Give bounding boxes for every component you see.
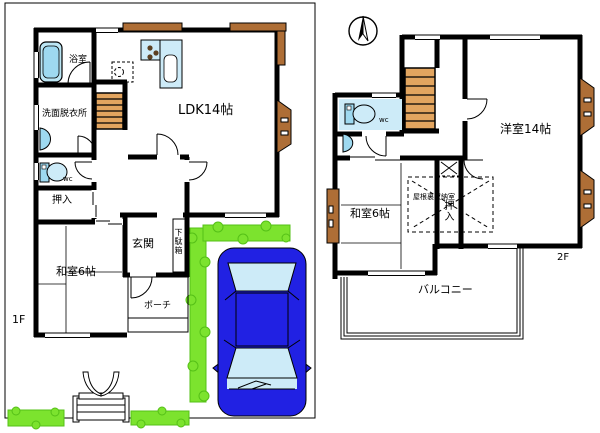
washbasin-1f xyxy=(40,128,51,150)
floor-plan-page: LDK14帖 浴室 洗面脱衣所 wc 押入 和室6帖 玄関 下駄箱 ポーチ 1F… xyxy=(0,0,600,433)
floor1-openings xyxy=(92,160,184,278)
bay-window-washitsu-2f xyxy=(327,189,339,243)
room-label-shoe-cabinet: 下駄箱 xyxy=(174,228,182,255)
room-label-balcony: バルコニー xyxy=(418,284,473,295)
floor1-stairs xyxy=(96,93,123,129)
room-label-wc-2f: wc xyxy=(379,117,389,124)
room-label-wc-1f: wc xyxy=(63,176,73,183)
wc-room-2f xyxy=(339,99,402,152)
washbasin-2f xyxy=(343,134,353,152)
room-label-western-room: 洋室14帖 xyxy=(500,123,551,135)
car-rear-window xyxy=(228,263,296,291)
toilet-bowl-2f xyxy=(353,105,375,123)
ldk-door-a xyxy=(157,134,178,155)
floor2-sliding-door xyxy=(350,156,400,161)
kitchen-counter xyxy=(123,23,182,88)
stove-burner xyxy=(147,45,152,50)
stove-burner xyxy=(147,54,152,59)
gate-left-leaf xyxy=(83,372,101,396)
floor1-sliding-doors xyxy=(95,219,123,225)
wc-door-2f xyxy=(366,136,386,156)
floor-label-1f: 1F xyxy=(12,314,25,325)
room-label-bath: 浴室 xyxy=(69,56,87,65)
floor1-tatami xyxy=(38,226,122,333)
bathtub xyxy=(40,42,62,82)
floor1-trim xyxy=(230,23,291,153)
room-label-closet-2f: 押入 xyxy=(442,200,452,222)
compass-icon xyxy=(349,16,377,45)
room-label-attic-storage: 屋根裏収納室 xyxy=(413,194,455,201)
floor2-stairs xyxy=(405,68,435,129)
gate-right-leaf xyxy=(101,372,119,396)
car-roof xyxy=(236,293,288,346)
eave-top-right xyxy=(230,23,286,31)
eave-over-kitchen xyxy=(123,23,182,31)
hedge-east-vertical xyxy=(190,228,206,402)
entrance-door xyxy=(131,277,152,298)
bay-window-1f xyxy=(277,100,291,153)
room-label-washroom: 洗面脱衣所 xyxy=(42,110,87,119)
gate xyxy=(73,372,129,422)
room-label-porch: ポーチ xyxy=(144,302,171,311)
room-label-closet-1f: 押入 xyxy=(52,196,72,206)
room-label-ldk: LDK14帖 xyxy=(178,104,233,117)
room-label-washitsu-1f: 和室6帖 xyxy=(56,266,96,277)
eave-right xyxy=(277,31,285,65)
western-room-door-b xyxy=(464,160,483,179)
floor-plan-drawing xyxy=(0,0,600,433)
wc-door-1f xyxy=(75,162,92,179)
room-label-washitsu-2f: 和室6帖 xyxy=(350,208,390,219)
room-label-entrance: 玄関 xyxy=(132,238,154,249)
western-room-door-a xyxy=(467,99,487,119)
car-windshield xyxy=(227,348,297,378)
car xyxy=(213,248,311,416)
ldk-door-b xyxy=(189,162,207,180)
stove-burner xyxy=(153,50,158,55)
bathroom-door xyxy=(68,62,90,84)
dining-table-dashed xyxy=(112,62,133,82)
kitchen-sink xyxy=(164,55,177,82)
floor-label-2f: 2F xyxy=(557,253,569,263)
